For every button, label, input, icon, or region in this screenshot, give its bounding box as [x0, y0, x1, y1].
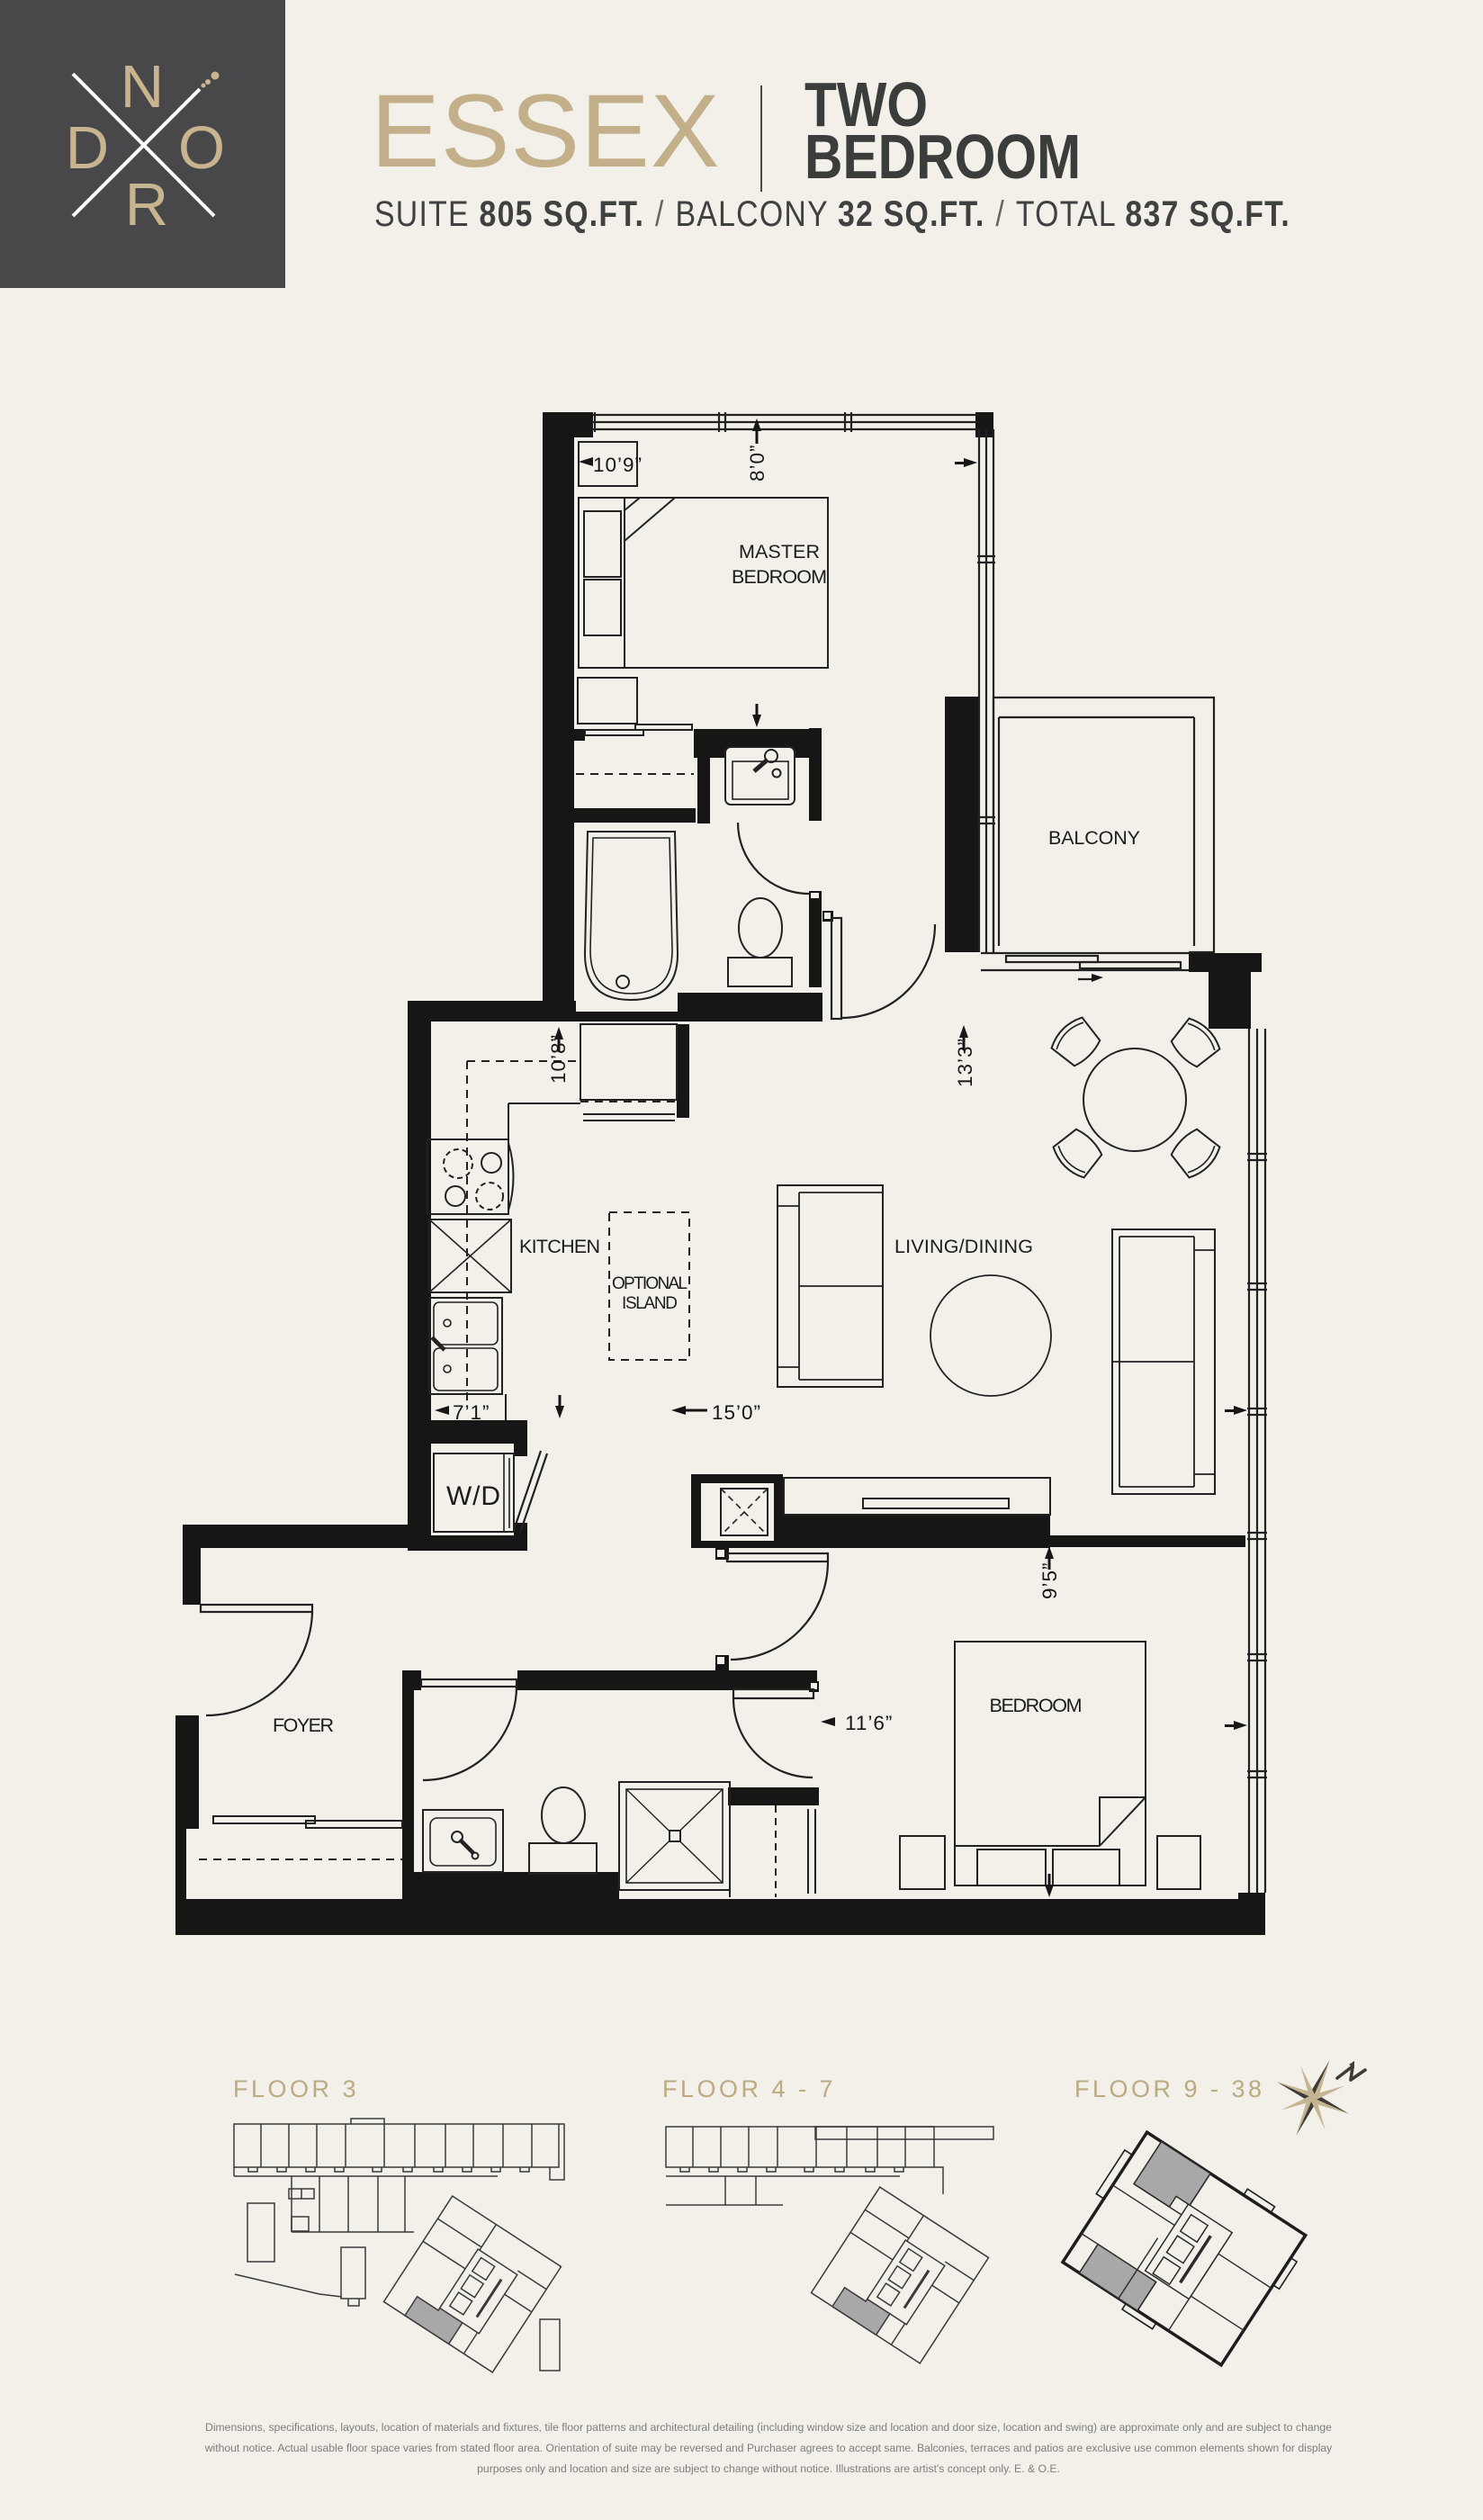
svg-text:BALCONY: BALCONY	[1048, 827, 1140, 849]
svg-text:MASTER: MASTER	[739, 541, 820, 562]
svg-text:BEDROOM: BEDROOM	[732, 566, 827, 588]
svg-text:15’0”: 15’0”	[712, 1401, 761, 1424]
svg-text:7’1”: 7’1”	[453, 1401, 490, 1424]
svg-text:11’6”: 11’6”	[845, 1712, 893, 1734]
svg-text:FLOOR 4 - 7: FLOOR 4 - 7	[662, 2075, 836, 2102]
svg-text:LIVING/DINING: LIVING/DINING	[894, 1236, 1033, 1257]
svg-text:OPTIONAL: OPTIONAL	[612, 1274, 688, 1293]
svg-text:10’9”: 10’9”	[593, 454, 643, 476]
svg-text:ISLAND: ISLAND	[622, 1294, 678, 1313]
svg-text:FOYER: FOYER	[273, 1714, 334, 1736]
svg-text:8’0”: 8’0”	[746, 444, 768, 481]
svg-text:W/D: W/D	[446, 1481, 500, 1511]
svg-text:FLOOR 3: FLOOR 3	[233, 2075, 359, 2102]
svg-text:BEDROOM: BEDROOM	[990, 1695, 1083, 1716]
svg-text:FLOOR 9 - 38: FLOOR 9 - 38	[1074, 2075, 1265, 2102]
svg-text:KITCHEN: KITCHEN	[519, 1236, 600, 1257]
